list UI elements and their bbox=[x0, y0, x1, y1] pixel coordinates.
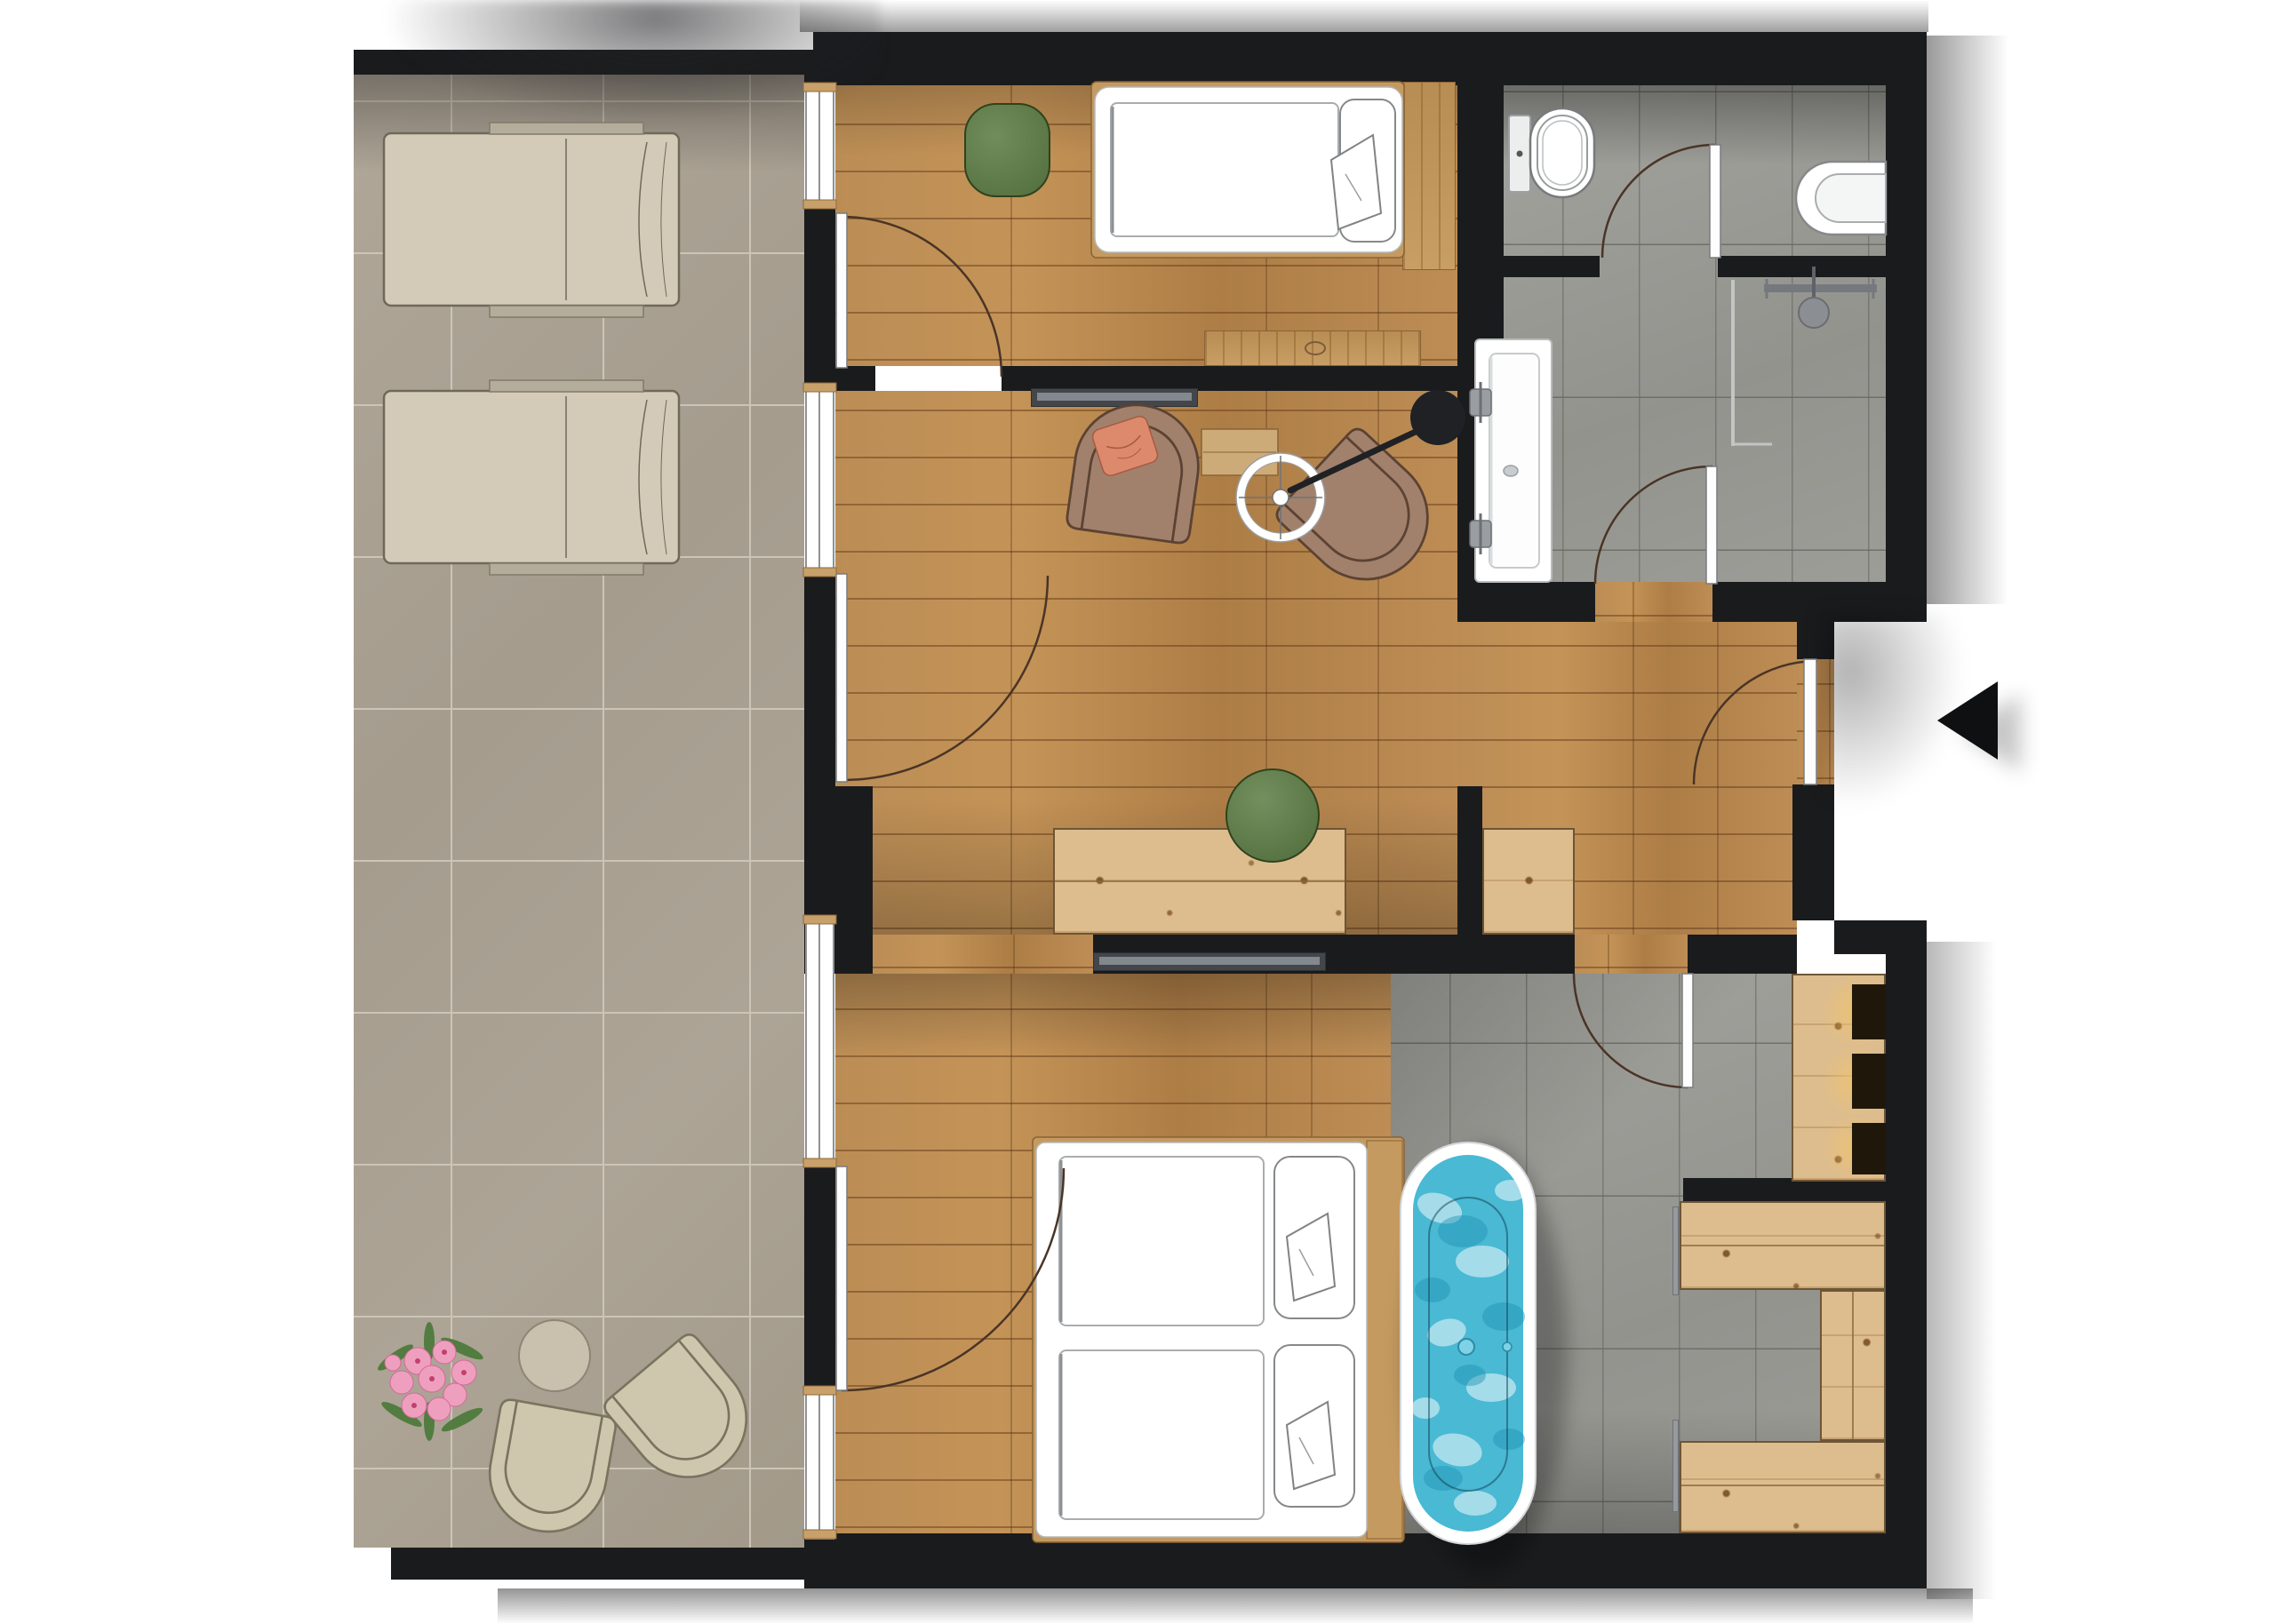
lamp-shade bbox=[1410, 390, 1465, 445]
outdoor-chair-1 bbox=[481, 1398, 618, 1541]
entrance-arrow bbox=[1937, 681, 1998, 760]
desk-knot bbox=[1305, 342, 1325, 354]
armchair-right bbox=[1273, 425, 1453, 604]
bidet bbox=[1796, 162, 1886, 235]
sun-lounger-2 bbox=[384, 391, 679, 563]
bathtub bbox=[1401, 1142, 1568, 1572]
single-bed bbox=[1091, 82, 1404, 258]
double-bed bbox=[1033, 1137, 1404, 1542]
window-sills bbox=[803, 83, 836, 1539]
shower-rail bbox=[1764, 284, 1877, 292]
toilet bbox=[1509, 108, 1594, 197]
vanity-sink bbox=[1470, 339, 1552, 582]
sun-lounger-1 bbox=[384, 133, 679, 306]
lounger-shelf-1a bbox=[490, 123, 643, 134]
shower bbox=[1733, 267, 1877, 446]
flower-plant bbox=[375, 1322, 485, 1441]
living-side-table bbox=[1201, 429, 1278, 475]
windows bbox=[806, 90, 834, 1539]
outdoor-chair-2 bbox=[601, 1331, 770, 1501]
lounger-shelf-2b bbox=[490, 563, 643, 575]
furniture-overlay bbox=[0, 0, 2275, 1624]
lounger-shelf-1b bbox=[490, 306, 643, 317]
lounger-shelf-2a bbox=[490, 380, 643, 392]
terrace-round-table bbox=[519, 1320, 590, 1391]
floor-plan bbox=[0, 0, 2275, 1624]
shower-head bbox=[1799, 298, 1829, 328]
